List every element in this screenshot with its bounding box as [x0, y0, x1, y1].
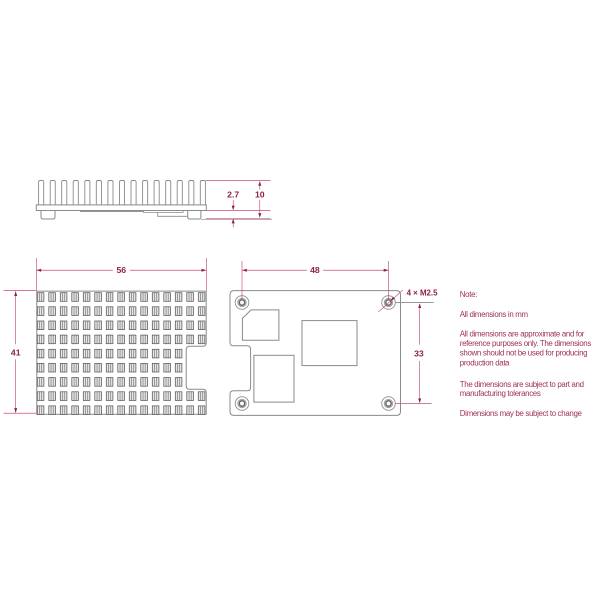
svg-text:All dimensions are approximate: All dimensions are approximate and for	[460, 329, 585, 338]
svg-text:reference purposes only. The d: reference purposes only. The dimensions	[460, 339, 592, 348]
svg-text:production data: production data	[460, 358, 510, 367]
svg-text:Note:: Note:	[460, 290, 477, 299]
svg-text:All dimensions in mm: All dimensions in mm	[460, 310, 529, 319]
svg-text:2.7: 2.7	[227, 189, 239, 199]
svg-text:shown should not be used for p: shown should not be used for producing	[460, 349, 587, 358]
svg-text:The dimensions are subject to: The dimensions are subject to part and	[460, 380, 584, 389]
svg-text:4 × M2.5: 4 × M2.5	[407, 288, 439, 297]
svg-text:41: 41	[11, 347, 21, 357]
svg-text:10: 10	[255, 189, 265, 199]
svg-text:manufacturing tolerances: manufacturing tolerances	[460, 389, 541, 398]
svg-text:56: 56	[116, 265, 126, 275]
svg-text:48: 48	[310, 265, 320, 275]
svg-text:Dimensions may be subject to c: Dimensions may be subject to change	[460, 409, 583, 418]
svg-text:33: 33	[414, 348, 424, 358]
